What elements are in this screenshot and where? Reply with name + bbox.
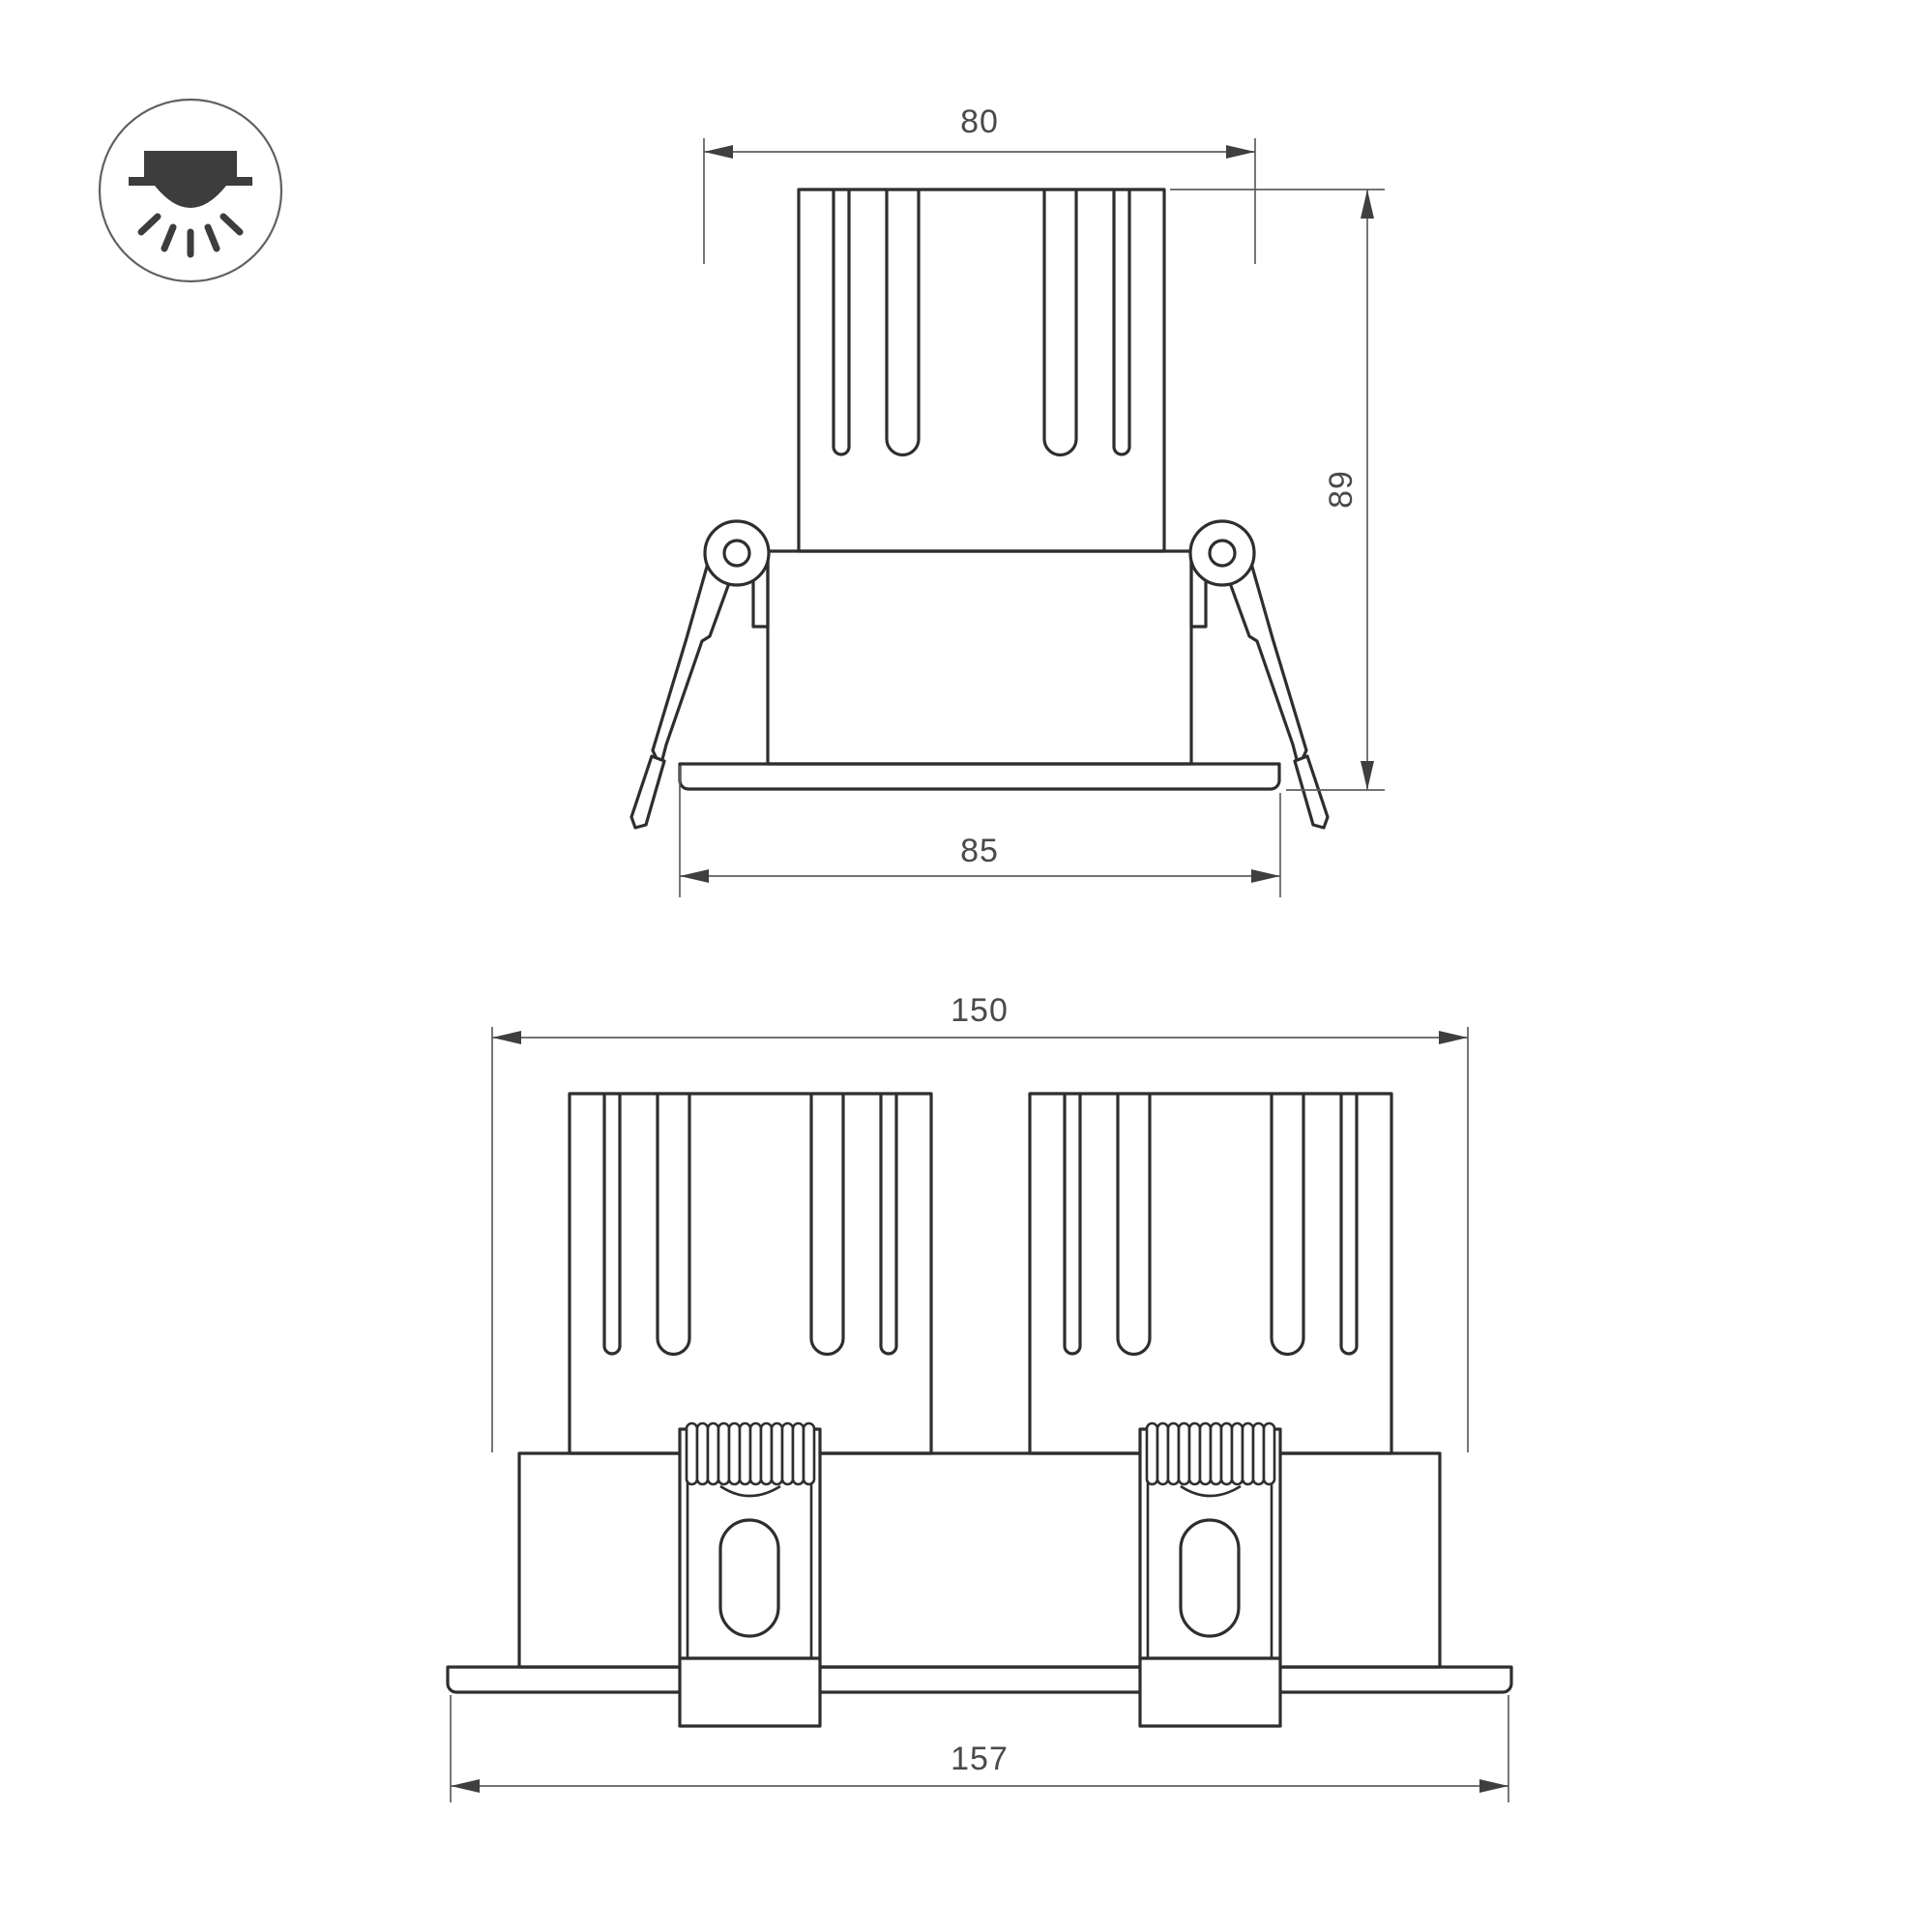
- arrow-left-icon: [680, 869, 709, 883]
- spring-coil: [1168, 1423, 1179, 1484]
- heatsink-outline-right: [1030, 1094, 1391, 1453]
- bracket-foot-right: [1140, 1658, 1280, 1726]
- arrow-right-icon: [1479, 1779, 1508, 1793]
- spring-coil: [1147, 1423, 1157, 1484]
- recessed-downlight-icon: [129, 151, 252, 208]
- heatsink-outline: [799, 190, 1164, 551]
- icon-lamp-body: [144, 151, 237, 177]
- drawing-page: 80 89 85 150 157: [0, 0, 1932, 1932]
- spring-coil: [697, 1423, 708, 1484]
- arrow-left-icon: [451, 1779, 480, 1793]
- icon-light-rays: [141, 217, 240, 254]
- spring-coil: [772, 1423, 782, 1484]
- spring-coil: [1264, 1423, 1274, 1484]
- heatsink-fin-slot: [1341, 1094, 1357, 1354]
- spring-coil: [1221, 1423, 1232, 1484]
- downlight-pictogram: [100, 100, 281, 281]
- spring-coil: [1157, 1423, 1168, 1484]
- heatsink-fin-slot: [658, 1094, 689, 1355]
- arrow-right-icon: [1226, 145, 1255, 159]
- coil-spring-left: [687, 1423, 814, 1484]
- heatsink-fin-slot: [1118, 1094, 1150, 1355]
- spring-coil: [782, 1423, 793, 1484]
- heatsink-fin-slot: [1114, 190, 1129, 454]
- spring-coil: [804, 1423, 814, 1484]
- spring-coil: [687, 1423, 697, 1484]
- spring-coil: [1232, 1423, 1243, 1484]
- dim-label-flange-width-double: 157: [951, 1741, 1009, 1777]
- arrow-left-icon: [492, 1031, 521, 1044]
- spring-coil: [793, 1423, 804, 1484]
- heatsink-fin-slot: [1065, 1094, 1080, 1354]
- dim-label-height-single: 89: [1323, 470, 1360, 509]
- arrow-right-icon: [1251, 869, 1280, 883]
- dim-label-top-width-double: 150: [951, 992, 1009, 1029]
- heatsink-fin-slot: [881, 1094, 896, 1354]
- luminaire-body-double: [519, 1453, 1440, 1667]
- spring-coil: [1200, 1423, 1211, 1484]
- spring-coil: [1211, 1423, 1221, 1484]
- mounting-flange: [680, 764, 1279, 789]
- heatsink-fin-slot: [1272, 1094, 1303, 1355]
- spring-coil: [718, 1423, 729, 1484]
- spring-coil: [750, 1423, 761, 1484]
- luminaire-body: [768, 551, 1191, 764]
- light-ray-icon: [223, 217, 240, 232]
- front-view-double: [448, 1094, 1511, 1726]
- spring-coil: [1189, 1423, 1200, 1484]
- spring-coil: [740, 1423, 750, 1484]
- arrow-right-icon: [1439, 1031, 1468, 1044]
- heatsink-fin-slot: [1044, 190, 1076, 455]
- spring-coil: [1179, 1423, 1189, 1484]
- dimension-arrows: [451, 145, 1508, 1793]
- heatsink-outline-left: [570, 1094, 931, 1453]
- mounting-flange-double: [448, 1667, 1511, 1692]
- bracket-foot-left: [680, 1658, 820, 1726]
- front-view-single: [631, 190, 1328, 828]
- light-ray-icon: [141, 217, 158, 232]
- clip-pivot-hole-right: [1210, 541, 1235, 566]
- icon-ceiling-trim: [129, 177, 252, 186]
- heatsink-fin-slot: [811, 1094, 843, 1355]
- arrow-up-icon: [1361, 190, 1374, 219]
- spring-clip-blade-right: [1295, 756, 1328, 828]
- light-ray-icon: [164, 227, 173, 249]
- spring-coil: [708, 1423, 718, 1484]
- heatsink-fin-slot: [834, 190, 849, 454]
- spring-coil: [729, 1423, 740, 1484]
- clip-pivot-hole-left: [724, 541, 749, 566]
- spring-coil: [761, 1423, 772, 1484]
- technical-drawing: 80 89 85 150 157: [0, 0, 1932, 1932]
- dimension-lines: [451, 138, 1508, 1802]
- heatsink-fin-slot: [604, 1094, 620, 1354]
- arrow-down-icon: [1361, 761, 1374, 790]
- spring-coil: [1243, 1423, 1253, 1484]
- spring-coil: [1253, 1423, 1264, 1484]
- dim-label-top-width-single: 80: [960, 103, 999, 140]
- arrow-left-icon: [704, 145, 733, 159]
- spring-clip-blade-left: [631, 756, 664, 828]
- light-ray-icon: [208, 227, 217, 249]
- heatsink-fin-slot: [887, 190, 919, 455]
- icon-light-dome: [155, 186, 226, 208]
- coil-spring-right: [1147, 1423, 1274, 1484]
- dim-label-flange-width-single: 85: [960, 833, 999, 869]
